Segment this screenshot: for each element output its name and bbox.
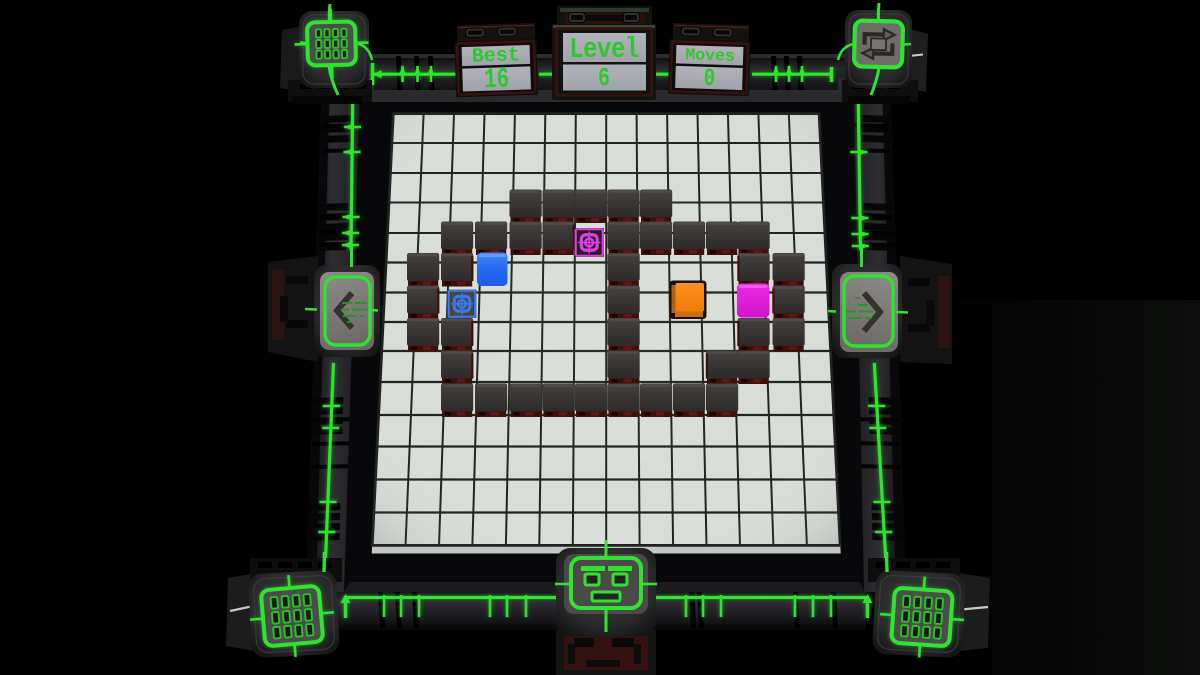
svg-text:6: 6 (598, 64, 610, 93)
svg-text:16: 16 (484, 64, 510, 97)
svg-text:0: 0 (703, 65, 715, 93)
svg-text:Level: Level (569, 33, 638, 65)
svg-text:Moves: Moves (685, 45, 735, 66)
